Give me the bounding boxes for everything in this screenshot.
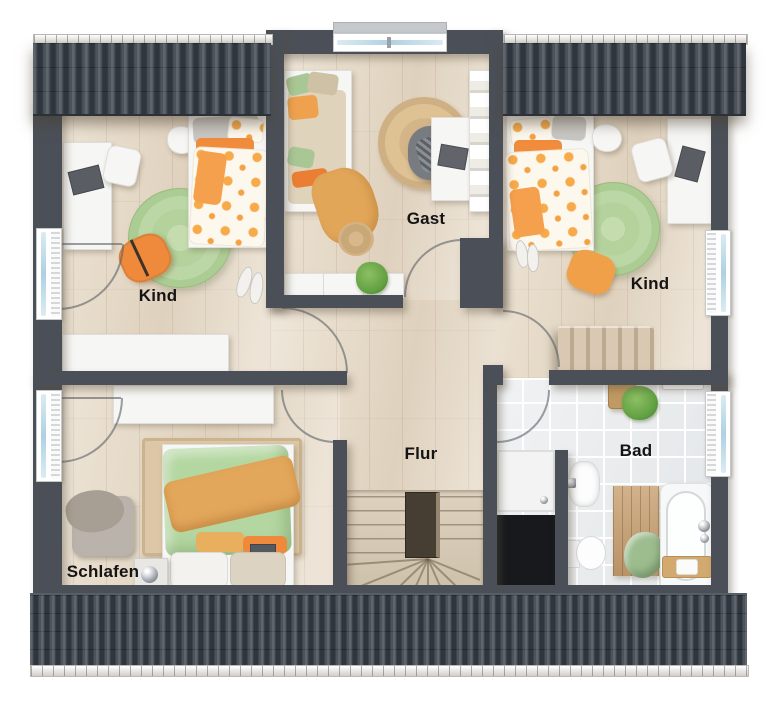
wardrobe-schlafen — [113, 385, 274, 424]
radiator-icon — [707, 394, 716, 474]
wall-block-gast-corner — [460, 238, 503, 308]
radiator-icon — [51, 231, 60, 317]
room-label-flur: Flur — [405, 444, 438, 464]
pillow-orange — [287, 94, 319, 120]
shaft-void — [497, 515, 555, 593]
wall-bad-divider — [555, 450, 568, 593]
sideboard-kind-left — [62, 334, 229, 375]
pouf-jute — [338, 222, 374, 256]
stairwell-void — [405, 492, 440, 558]
radiator-icon — [51, 393, 60, 479]
plant-icon — [622, 386, 658, 420]
wall-gast-bottom — [266, 295, 403, 308]
shower-drain-icon — [540, 496, 548, 504]
pillow-khaki — [307, 71, 340, 96]
wall-bad-top — [549, 370, 728, 385]
window-glass — [41, 232, 46, 316]
blanket-orange-fold — [509, 186, 545, 238]
wall-kind-left-bottom — [33, 371, 347, 385]
window-swing-leaf — [58, 397, 121, 399]
attic-steps — [558, 326, 654, 372]
shelf-gast — [469, 70, 491, 212]
room-label-kind-right: Kind — [631, 274, 670, 294]
lamp-icon — [141, 566, 158, 583]
gutter-bottom — [30, 665, 749, 677]
floor-plan: Kind Gast Kind Flur Bad Schlafen — [0, 0, 775, 705]
laptop-icon — [437, 144, 468, 171]
window-glass — [721, 395, 726, 473]
window-schlafen — [36, 390, 62, 482]
wall-kind-right-left-low — [489, 365, 503, 385]
window-bad — [705, 391, 731, 477]
window-glass — [721, 234, 726, 312]
bath-faucet-icon — [698, 520, 710, 532]
stair-flight-left — [347, 496, 405, 558]
room-label-gast: Gast — [407, 209, 446, 229]
room-label-bad: Bad — [620, 441, 653, 461]
wall-exterior-right — [711, 108, 728, 600]
roof-top-left — [33, 43, 271, 116]
side-table-kind-right — [592, 124, 622, 152]
window-handle-icon — [387, 37, 391, 48]
wall-exterior-left — [33, 100, 62, 600]
pillow-white — [170, 552, 228, 588]
window-swing-leaf — [58, 243, 122, 245]
window-dormer-gast — [333, 33, 447, 52]
room-label-schlafen: Schlafen — [67, 562, 139, 582]
radiator-icon — [707, 233, 716, 313]
roof-top-right — [503, 43, 746, 116]
toilet-bowl — [576, 536, 606, 570]
staircase — [347, 490, 483, 593]
pillow-gray — [551, 115, 587, 141]
window-kind-left — [36, 228, 62, 320]
window-glass — [41, 394, 46, 478]
plant-icon — [356, 262, 388, 294]
pillow-mustard — [196, 532, 244, 552]
roof-bottom — [30, 593, 747, 669]
desk-kind-left — [63, 142, 112, 250]
stair-flight-right — [435, 496, 483, 544]
bath-faucet-icon — [700, 534, 709, 543]
room-label-kind-left: Kind — [139, 286, 178, 306]
wall-stairs-bad — [483, 365, 497, 595]
window-kind-right — [705, 230, 731, 316]
wall-schlafen-right — [333, 440, 347, 595]
towel-white — [676, 559, 698, 575]
pillow-beige — [230, 552, 286, 588]
